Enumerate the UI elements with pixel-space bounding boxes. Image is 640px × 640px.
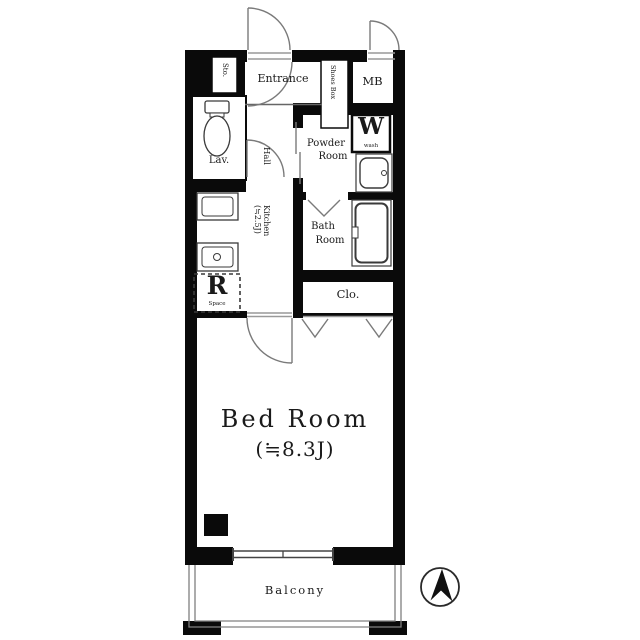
closet-label: Clo. <box>303 288 393 301</box>
washer-symbol: W <box>352 114 390 140</box>
washbasin-icon <box>356 154 392 192</box>
bath-folding-door <box>308 200 340 216</box>
bed-room-size-label: (≒8.3J) <box>197 438 393 461</box>
kitchen-label-size: (≒2.5J) <box>253 205 262 236</box>
compass-icon <box>421 568 459 606</box>
refrigerator-caption: Space <box>194 301 240 307</box>
hall-label: Hall <box>260 147 270 165</box>
refrigerator-symbol: R <box>194 272 240 301</box>
closet-bifold-left <box>302 319 328 337</box>
pillar <box>204 514 228 536</box>
right-wall <box>393 50 405 565</box>
closet-bifold-right <box>366 319 392 337</box>
kitchen-label: Kitchen (≒2.5J) <box>253 205 271 236</box>
bathtub-icon <box>352 200 391 266</box>
bed-room-label: Bed Room <box>197 406 393 434</box>
powder-room-label-line2: Room <box>309 151 357 163</box>
entrance-label: Entrance <box>245 73 321 86</box>
shoes-box-label: Shoes Box <box>329 65 336 99</box>
washer-caption: wash <box>352 143 390 149</box>
toilet-icon <box>204 101 230 156</box>
floor-plan-drawing <box>0 0 640 640</box>
bedroom-door-swing <box>247 318 292 363</box>
window <box>233 548 333 561</box>
kitchen-sink-icon <box>197 243 238 271</box>
floor-plan: Sto. Entrance Shoes Box MB Lav. Hall Kit… <box>0 0 640 640</box>
entrance-door-swing <box>248 8 290 50</box>
bath-room-label-line1: Bath <box>301 221 345 233</box>
lavatory-label: Lav. <box>192 155 246 167</box>
kitchen-label-name: Kitchen <box>262 205 271 236</box>
meter-box-label: MB <box>352 75 393 88</box>
bath-room-label-line2: Room <box>308 235 352 247</box>
powder-room-label-line1: Powder <box>302 138 350 150</box>
balcony-label: Balcony <box>197 584 393 597</box>
kitchen-counter-icon <box>197 193 238 220</box>
mb-door-swing <box>370 21 399 50</box>
storage-label: Sto. <box>221 63 229 77</box>
powder-sliding-door <box>296 122 300 184</box>
